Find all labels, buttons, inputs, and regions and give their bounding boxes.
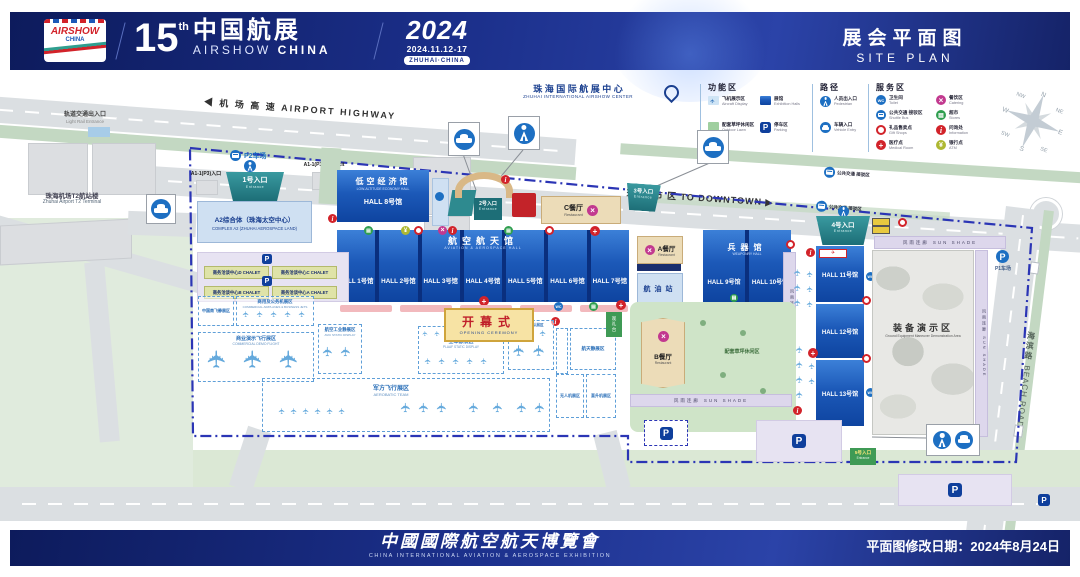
stores-icon: ▤	[730, 294, 738, 302]
hall-cell: HALL 5号馆	[506, 230, 544, 302]
svg-text:S: S	[1018, 145, 1025, 153]
shuttle-bus-icon	[824, 166, 836, 178]
a1-entrance-label: A1-1(P3)入口	[178, 172, 234, 178]
pedestrian-vehicle-entry-box	[926, 424, 980, 456]
gift-shops-icon	[862, 354, 871, 363]
event-city-chip: ZHUHAI·CHINA	[404, 56, 470, 65]
parking-lot-southeast: P	[898, 474, 1012, 506]
ticket-booth	[872, 218, 890, 226]
information-icon: i	[806, 248, 815, 257]
gift-shops-icon	[876, 125, 886, 135]
information-icon: i	[793, 406, 802, 415]
page-title: 展会平面图 SITE PLAN	[800, 23, 1010, 65]
parking-icon: P	[660, 427, 673, 440]
hall-12: HALL 12号馆	[816, 304, 864, 358]
toilet-icon: WC	[876, 95, 886, 105]
zone-uav: 无人机展区	[556, 374, 584, 418]
footer-bar: 中國國際航空航天博覽會 CHINA INTERNATIONAL AVIATION…	[10, 530, 1070, 566]
footer-title: 中國國際航空航天博覽會 CHINA INTERNATIONAL AVIATION…	[340, 533, 640, 559]
hall-cell: HALL 7号馆	[591, 230, 629, 302]
terminal-label: 珠海机场T2航站楼 Zhuhai Airport T2 Terminal	[8, 193, 136, 206]
catering-icon: ×	[645, 245, 655, 255]
pedestrian-entry-icon	[514, 123, 535, 144]
tree	[700, 320, 706, 326]
catering-icon: ×	[587, 205, 598, 216]
information-icon: i	[448, 226, 457, 235]
p2-shuttle-icon	[230, 150, 241, 161]
gift-shops-icon	[898, 218, 907, 227]
entrance-1: 1号入口 Entrance	[226, 172, 284, 201]
parking-icon: P	[262, 276, 272, 286]
year-block: 2024 2024.11.12-17 ZHUHAI·CHINA	[394, 17, 480, 65]
gift-shops-icon	[862, 296, 871, 305]
zone-avic-static: 航空工业静展区AVIC STATIC DISPLAY ✈ ✈	[318, 324, 362, 374]
medical-icon: +	[590, 226, 600, 236]
airshow-logo: AIRSHOW CHINA	[44, 19, 106, 62]
vehicle-entry-icon	[703, 137, 724, 158]
parking-icon: P	[792, 434, 806, 448]
parking-chip-south: P	[644, 420, 688, 446]
header-bar: AIRSHOW CHINA 15 th 中国航展 AIRSHOW CHINA 2…	[10, 12, 1070, 70]
parking-lot-south: P	[756, 420, 842, 462]
lawn-label: 配套草坪休闲区	[692, 350, 792, 356]
stores-icon: ▤	[504, 226, 513, 235]
light-rail-chip	[88, 127, 110, 137]
walkway-strip	[432, 178, 449, 226]
p1-parking-icon: P	[996, 250, 1009, 263]
legend: 功能区 ✈ 飞机展示区Aircraft Display 展馆Exhibition…	[696, 80, 996, 162]
atm-icon: ¥	[936, 140, 946, 150]
hall-cell: HALL 2号馆	[379, 230, 417, 302]
hall-13: HALL 13号馆	[816, 360, 864, 426]
aviation-hall: HALL 1号馆 HALL 2号馆 HALL 3号馆 HALL 4号馆 HALL…	[337, 230, 629, 302]
pedestrian-entry-icon	[933, 431, 951, 449]
chalet-c: 商务洽谈中心C CHALET	[272, 266, 337, 279]
hall-cell: HALL 9号馆	[703, 230, 745, 302]
legend-group-services: 服务区	[876, 82, 906, 93]
toilet-icon: WC	[554, 302, 563, 311]
entrance1-pedestrian-icon	[244, 160, 256, 172]
atm-icon: ¥	[401, 226, 410, 235]
shuttle-bus-icon	[816, 200, 828, 212]
page-title-en: SITE PLAN	[800, 51, 1010, 65]
pedestrian-icon	[820, 96, 831, 107]
zone-aerobatic: 军方飞行展区AEROBATIC TEAM ✈ ✈ ✈ ✈ ✈ ✈ ✈ ✈ ✈ ✈…	[262, 378, 550, 432]
service-strip	[340, 305, 392, 312]
information-icon: i	[328, 214, 337, 223]
svg-text:N: N	[1040, 91, 1047, 99]
shuttle-bus-icon	[876, 110, 886, 120]
vehicle-entry-box-terminal	[146, 194, 176, 224]
legend-group-routes: 路径	[820, 82, 840, 93]
legend-group-functions: 功能区	[708, 82, 738, 93]
tree	[740, 330, 746, 336]
hall-cell: HALL 3号馆	[422, 230, 460, 302]
stores-icon: ▤	[589, 302, 598, 311]
hall-11: HALL 11号馆 ✈	[816, 246, 864, 302]
chalet-d: 商务洽谈中心D CHALET	[204, 266, 269, 279]
vehicle-entry-icon	[454, 129, 475, 150]
event-title: 15 th 中国航展 AIRSHOW CHINA	[134, 18, 331, 58]
logo-text-1: AIRSHOW	[44, 26, 106, 37]
vehicle-entry-box-center	[448, 122, 480, 156]
svg-text:NW: NW	[1015, 91, 1026, 100]
restaurant-b: × B餐厅 Restaurant	[641, 318, 685, 388]
title-en-1: AIRSHOW	[193, 43, 271, 57]
page-title-cn: 展会平面图	[800, 23, 1010, 50]
bench-icon	[1029, 261, 1040, 274]
medical-icon: +	[616, 300, 626, 310]
city-block	[92, 143, 156, 195]
aircraft-display-chip: ✈	[819, 249, 847, 258]
header-divider-1	[115, 22, 125, 59]
event-city: ZHUHAI·CHINA	[409, 58, 465, 64]
parking-icon: P	[1038, 494, 1050, 506]
svg-text:W: W	[1001, 106, 1010, 115]
title-cn: 中国航展	[193, 18, 331, 43]
fuel-station: 航油站	[637, 273, 683, 305]
bench-icon	[1013, 424, 1024, 437]
zone-comac: 中国商飞静展区	[198, 296, 234, 326]
entrance-5: 5号入口 Entrance	[850, 448, 876, 465]
event-dates: 2024.11.12-17	[394, 44, 480, 54]
title-number: 15	[134, 18, 179, 58]
catering-icon: ×	[936, 95, 946, 105]
restaurant-a: × A餐厅 Restaurant	[637, 236, 683, 264]
red-building	[512, 193, 536, 217]
zone-commercial-demo: 商业演示飞行展区COMMERCIAL DEMO FLIGHT ✈ ✈ ✈	[198, 332, 314, 382]
hall-cell: HALL 6号馆	[548, 230, 586, 302]
medical-icon: +	[876, 140, 886, 150]
p1-parking-label: P1车场	[984, 267, 1022, 273]
venue-title: 珠 海 国 际 航 展 中 心 ZHUHAI INTERNATIONAL AIR…	[498, 84, 658, 99]
opening-ceremony: 开幕式 OPENING CEREMONY	[444, 308, 534, 342]
ticket-booth	[872, 226, 890, 234]
sunshade-bottom: 风雨连廊SUN SHADE	[630, 394, 792, 407]
title-en-2: CHINA	[278, 43, 331, 57]
vehicle-icon	[820, 122, 831, 133]
stores-icon: ▤	[364, 226, 373, 235]
information-icon: i	[936, 125, 946, 135]
zone-commercial-jets: 商用及公务机展区COMMERCIAL AIRPLANES & BUSINESS …	[236, 296, 314, 326]
equipment-demo-area: 装备演示区 Ground Equipment Maneuver Demonstr…	[872, 250, 974, 435]
medical-icon: +	[808, 348, 818, 358]
svg-text:NE: NE	[1055, 107, 1065, 116]
gift-shops-icon	[545, 226, 554, 235]
catering-icon: ×	[438, 226, 447, 235]
entrance-4: 4号入口 Entrance	[816, 216, 870, 245]
svg-text:SW: SW	[1000, 130, 1011, 139]
year-2024: 2024	[394, 17, 480, 43]
zone-divider-strip	[556, 328, 568, 374]
catering-icon: ×	[658, 331, 669, 342]
weaponry-hall: HALL 9号馆 HALL 10号馆 兵器馆 WEAPONRY HALL	[703, 230, 791, 302]
hall-cell: HALL 4号馆	[464, 230, 502, 302]
svg-text:SE: SE	[1039, 146, 1048, 154]
viewing-stand: 观礼台	[606, 312, 622, 337]
hall-8: 低空经济馆 LOW-ALTITUDE ECONOMY HALL HALL 8号馆	[337, 170, 429, 222]
light-rail-label: 轨道交通出入口 Light Rail Entrance	[20, 112, 150, 124]
gift-shops-icon	[414, 226, 423, 235]
terminal-building	[0, 219, 132, 266]
fuel-station-banner	[637, 264, 681, 271]
city-block	[28, 143, 88, 195]
pedestrian-entry-box-center	[508, 116, 540, 150]
tree	[720, 372, 726, 378]
aircraft-display-swatch: ✈	[708, 96, 719, 105]
parking-icon: P	[948, 483, 962, 497]
vehicle-entry-icon	[151, 199, 171, 219]
complex-a2: A2综合体（珠海太空中心） COMPLEX A2 (ZHUHAI AEROSPA…	[197, 201, 312, 243]
entrance-2: 2号入口 Entrance	[474, 198, 502, 220]
shuttle-stop-1: 公共交通 接驳区	[824, 166, 870, 180]
sunshade-top: 风雨连廊SUN SHADE	[874, 236, 1006, 249]
parking-icon: P	[760, 122, 771, 133]
vehicle-entry-icon	[955, 431, 973, 449]
revision-date: 平面图修改日期：2024年8月24日	[800, 540, 1060, 555]
walkway-icon	[435, 192, 444, 201]
title-sup: th	[179, 21, 189, 33]
restaurant-c: C餐厅 Restaurant ×	[541, 196, 621, 224]
parking-icon: P	[262, 254, 272, 264]
zone-helicopter: 直升机展区	[586, 374, 616, 418]
stores-icon: ▤	[936, 110, 946, 120]
sunshade-east: 风雨连廊 SUN SHADE	[975, 250, 988, 437]
header-divider-2	[373, 22, 383, 59]
gift-shops-icon	[786, 240, 795, 249]
entrance-3: 3号入口 Entrance	[625, 183, 661, 212]
svg-text:E: E	[1057, 129, 1064, 137]
information-icon: i	[501, 175, 510, 184]
exhibition-hall-swatch	[760, 96, 771, 105]
a1-entrance-box	[196, 180, 218, 195]
compass-rose: N NE E SE S SW W NW	[1000, 88, 1066, 154]
vehicle-entry-box-downtown	[697, 130, 729, 164]
entrance4-pedestrian-icon	[838, 206, 849, 217]
